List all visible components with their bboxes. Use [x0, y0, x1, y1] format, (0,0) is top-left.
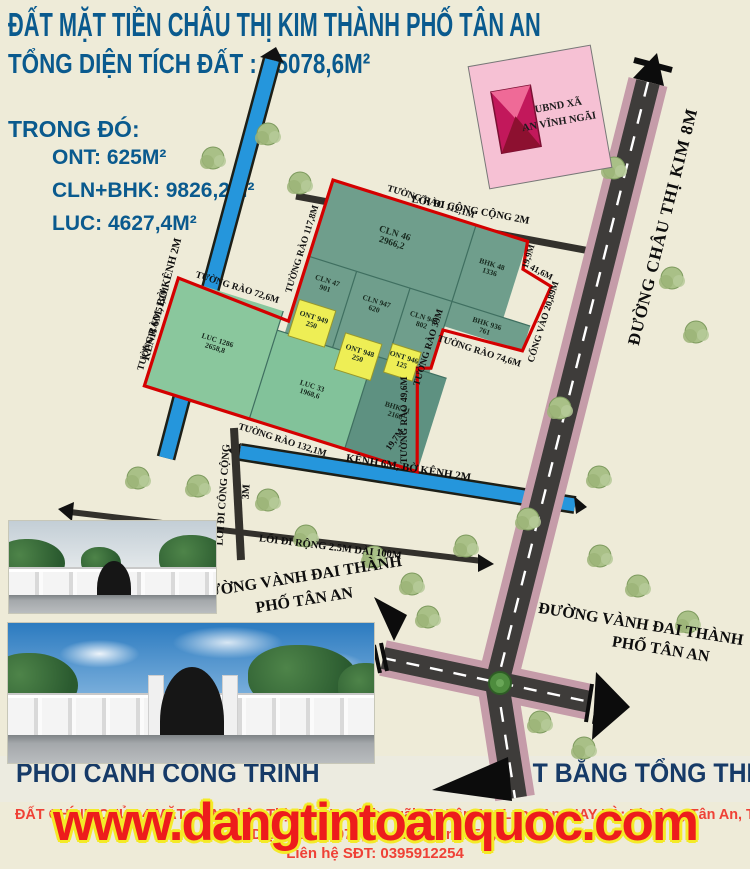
label-fence-49: TƯỜNG RÀO 49,6M: [398, 376, 410, 463]
photo1-road: [9, 595, 216, 613]
photo2-road: [8, 735, 374, 763]
label-gate-entry: CỔNG VÀO 20,89M: [524, 279, 562, 364]
label-vanh-dai-right: ĐƯỜNG VÀNH ĐAI THÀNH PHỐ TÂN AN: [537, 598, 745, 666]
flyer-page: ĐẤT MẶT TIỀN CHÂU THỊ KIM THÀNH PHỐ TÂN …: [0, 0, 750, 869]
label-vanh-dai-left: ĐƯỜNG VÀNH ĐAI THÀNH PHỐ TÂN AN: [195, 551, 403, 617]
watermark-text: www.dangtintoanquoc.com: [0, 792, 750, 853]
label-public-path-width: 3M: [240, 484, 252, 500]
roundabout: [489, 672, 511, 694]
photo2-gatepost-right: [222, 675, 238, 737]
perspective-photo-small: [8, 520, 217, 614]
ubnd-block: UBND XÃ AN VĨNH NGÃI: [468, 45, 612, 189]
arrow-west-icon: [374, 597, 407, 641]
perspective-photo-large: [7, 622, 375, 764]
